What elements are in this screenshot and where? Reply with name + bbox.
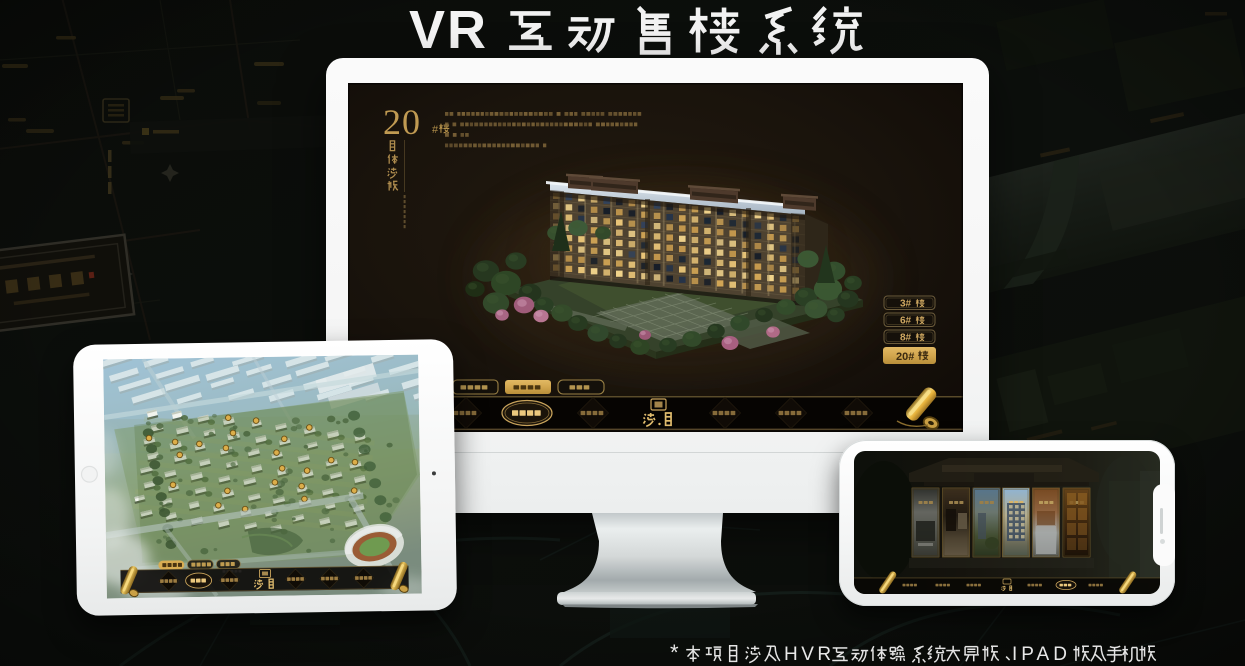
svg-text:3#: 3# bbox=[900, 299, 912, 310]
svg-text:VR: VR bbox=[409, 0, 488, 60]
svg-text:HVR: HVR bbox=[784, 644, 835, 665]
svg-text:*: * bbox=[670, 640, 679, 665]
svg-text:8#: 8# bbox=[900, 333, 912, 344]
svg-text:6#: 6# bbox=[900, 316, 912, 327]
svg-text:IPAD: IPAD bbox=[1012, 644, 1071, 665]
svg-text:20#: 20# bbox=[896, 351, 914, 363]
svg-text:20: 20 bbox=[383, 102, 421, 142]
svg-text:#: # bbox=[432, 124, 439, 136]
